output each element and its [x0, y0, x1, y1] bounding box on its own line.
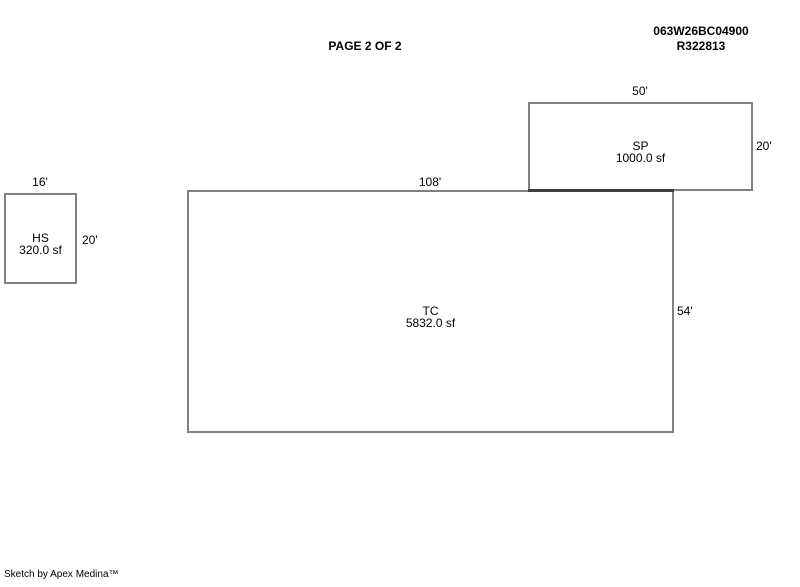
- sketch-page: PAGE 2 OF 2 063W26BC04900 R322813 SP 100…: [0, 0, 800, 587]
- area-size-sp: 1000.0 sf: [616, 152, 665, 164]
- area-outline-sp: SP 1000.0 sf: [528, 102, 753, 191]
- area-outline-hs: HS 320.0 sf: [4, 193, 77, 284]
- dimension-sp-height: 20': [756, 140, 772, 152]
- dimension-hs-width: 16': [16, 176, 64, 188]
- sketch-credit: Sketch by Apex Medina™: [4, 569, 119, 581]
- parcel-id: 063W26BC04900: [650, 25, 752, 37]
- page-title: PAGE 2 OF 2: [325, 40, 405, 52]
- record-id: R322813: [650, 40, 752, 52]
- dimension-tc-height: 54': [677, 305, 693, 317]
- dimension-hs-height: 20': [82, 234, 98, 246]
- area-label-sp: SP 1000.0 sf: [616, 140, 665, 164]
- area-outline-tc: TC 5832.0 sf: [187, 190, 674, 433]
- dimension-sp-width: 50': [610, 85, 670, 97]
- dimension-tc-width: 108': [400, 176, 460, 188]
- area-size-hs: 320.0 sf: [19, 244, 62, 256]
- area-label-hs: HS 320.0 sf: [19, 232, 62, 256]
- area-label-tc: TC 5832.0 sf: [406, 305, 455, 329]
- area-size-tc: 5832.0 sf: [406, 317, 455, 329]
- shared-wall-line: [528, 189, 674, 192]
